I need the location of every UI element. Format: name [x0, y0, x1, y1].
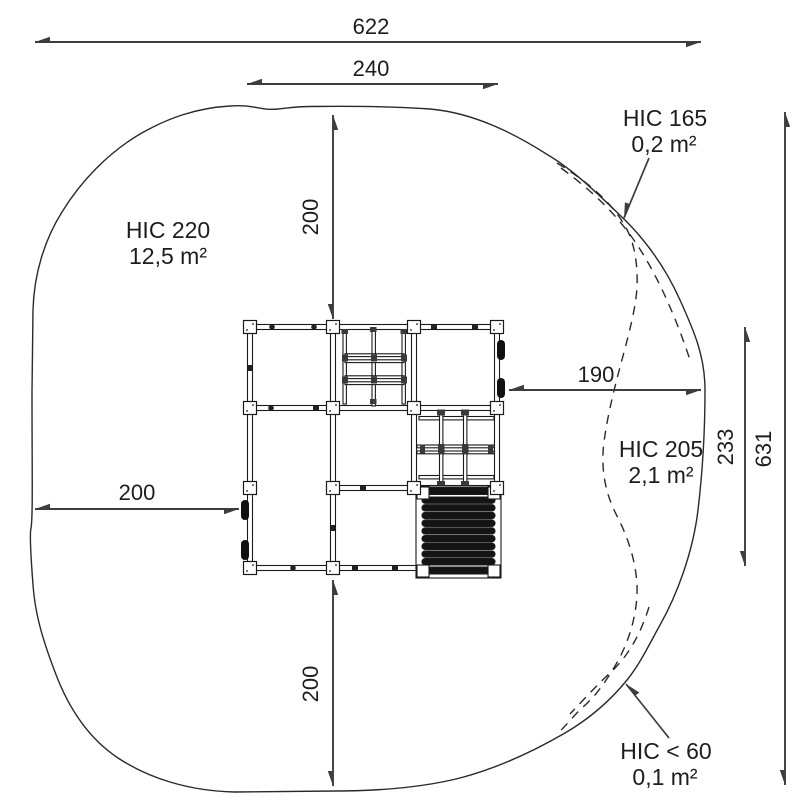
hic165-label: HIC 165 0,2 m² [623, 105, 707, 218]
dimension-overall-depth: 631 [751, 112, 785, 785]
net-rail [343, 331, 346, 404]
hic205-area: 2,1 m² [628, 462, 694, 488]
dimension-overall-depth-label: 631 [751, 431, 776, 468]
hic60-name: HIC < 60 [620, 738, 711, 764]
hic220-area: 12,5 m² [129, 243, 207, 269]
play-structure [241, 321, 505, 579]
beam-center [331, 327, 336, 568]
hic165-callout-arrow [624, 158, 649, 218]
grip-icon [497, 340, 505, 360]
hic220-label: HIC 220 12,5 m² [126, 217, 210, 269]
safety-zone-diagram: 622 240 200 190 233 631 200 200 [0, 0, 800, 800]
hic165-name: HIC 165 [623, 105, 707, 131]
slide-rollers [422, 497, 495, 565]
dimension-structure-depth: 233 [713, 327, 745, 566]
net-rail [419, 417, 494, 420]
hic60-area: 0,1 m² [632, 764, 698, 790]
net-rail [372, 329, 375, 406]
net-rung [417, 445, 494, 448]
dimension-structure-depth-label: 233 [713, 429, 738, 466]
dimension-inner-width-label: 240 [353, 56, 390, 81]
dimension-left-offset-label: 200 [119, 480, 156, 505]
dimension-bottom-offset: 200 [298, 580, 333, 786]
hic205-name: HIC 205 [619, 436, 703, 462]
grip-icon [497, 378, 505, 398]
hic205-label: HIC 205 2,1 m² [619, 436, 703, 488]
dimension-bottom-offset-label: 200 [298, 666, 323, 703]
climbing-net-right [417, 410, 494, 488]
hic220-name: HIC 220 [126, 217, 210, 243]
dimension-right-offset: 190 [509, 362, 701, 390]
hic165-dashed-boundary [561, 168, 690, 360]
beam-left [248, 327, 253, 568]
net-rail [419, 476, 494, 479]
slide-bar [420, 567, 497, 574]
hic60-label: HIC < 60 0,1 m² [620, 684, 711, 790]
dimension-top-offset-label: 200 [298, 199, 323, 236]
roller-slide [416, 486, 501, 578]
hic60-callout-arrow [626, 684, 669, 738]
grip-icon [241, 500, 249, 520]
grip-icon [241, 540, 249, 560]
dimension-overall-width-label: 622 [353, 14, 390, 39]
dimension-overall-width: 622 [35, 14, 701, 42]
hic165-area: 0,2 m² [631, 131, 697, 157]
dimension-right-offset-label: 190 [578, 362, 615, 387]
dimension-inner-width: 240 [247, 56, 498, 84]
diagram-canvas: 622 240 200 190 233 631 200 200 [0, 0, 800, 800]
climbing-net-top [342, 327, 408, 406]
net-rail [402, 331, 405, 404]
dimension-left-offset: 200 [35, 480, 239, 509]
net-rung [417, 451, 494, 454]
dimension-top-offset: 200 [298, 115, 333, 319]
slide-bar [420, 488, 497, 495]
